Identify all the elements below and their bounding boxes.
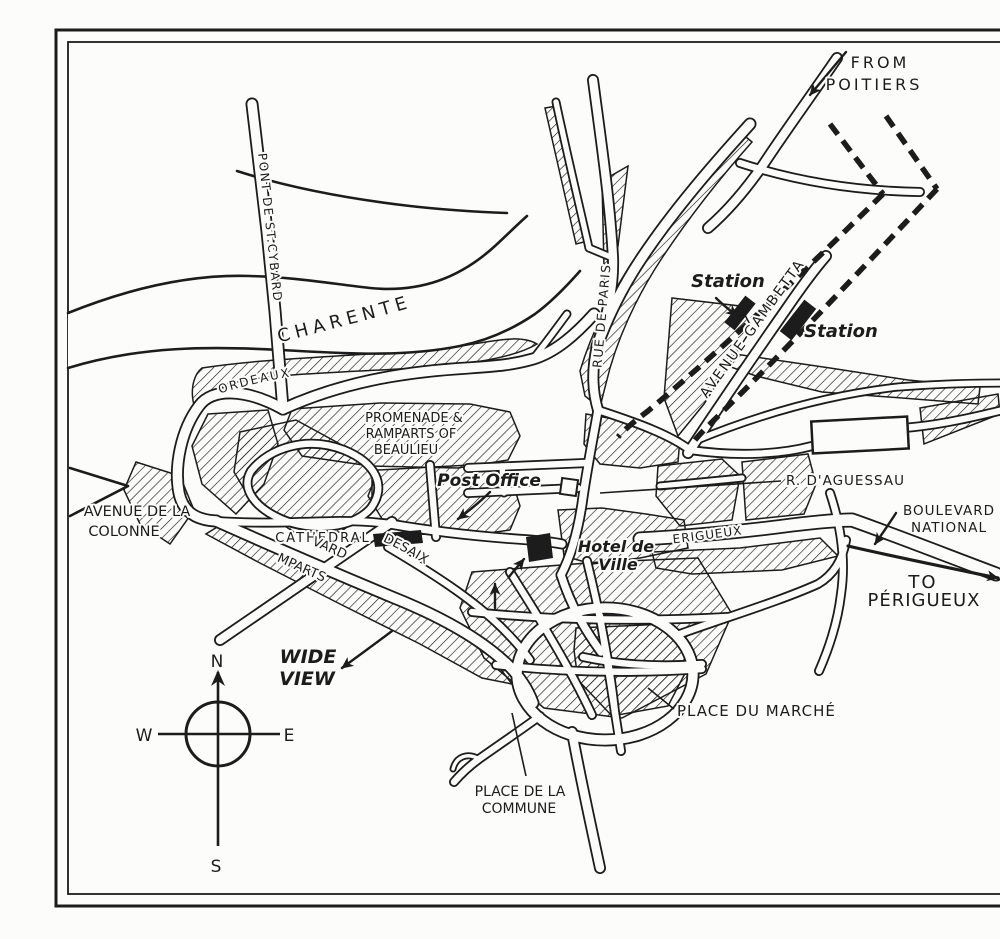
from-poitiers-label-2: POITIERS [826,75,923,94]
compass-w-label: W [136,726,153,746]
hotel-de-ville-label-2: Ville [598,555,638,574]
promenade-label-1: PROMENADE & [365,411,463,426]
promenade-label-2: RAMPARTS OF [366,427,457,442]
promenade-label-3: BEAULIEU [374,443,438,458]
compass-n-label: N [211,652,224,672]
railway-spur-2 [886,116,937,189]
long-outlined-building [811,417,909,454]
boulevard-national-label-1: BOULEVARD [903,503,995,519]
small-outlined-building [560,478,578,496]
road-surface [572,732,600,868]
map-canvas: FROM POITIERS RIVER CHARENTE PONT DE ST.… [40,16,1000,923]
station-label-2: Station [804,321,878,342]
road-surface [454,716,540,782]
post-office-label: Post Office [437,471,541,491]
avenue-colonne-label-2: COLONNE [88,524,159,540]
r-daguessau-label: R. D'AGUESSAU [786,473,905,489]
vintage-city-map-angouleme: FROM POITIERS RIVER CHARENTE PONT DE ST.… [40,16,1000,923]
hatched-city-blocks [124,106,1000,718]
hotel-de-ville-building [526,533,553,562]
compass-e-label: E [284,726,295,746]
wide-view-label-1: WIDE [280,646,337,668]
station-label-1: Station [691,271,765,292]
from-poitiers-label-1: FROM [851,53,910,72]
place-commune-label-1: PLACE DE LA [475,784,566,800]
compass-rose: N S W E [136,652,295,877]
to-perigueux-label-2: PÉRIGUEUX [867,589,980,611]
place-commune-label-2: COMMUNE [482,801,557,817]
wide-view-arrow [342,631,392,668]
compass-s-label: S [211,857,222,877]
avenue-colonne-label-1: AVENUE DE LA [84,504,191,520]
place-du-marche-label: PLACE DU MARCHÉ [677,701,836,720]
wide-view-label-2: VIEW [279,668,336,690]
boulevard-national-label-2: NATIONAL [911,520,987,536]
hotel-de-ville-label-1: Hotel de [578,537,654,556]
